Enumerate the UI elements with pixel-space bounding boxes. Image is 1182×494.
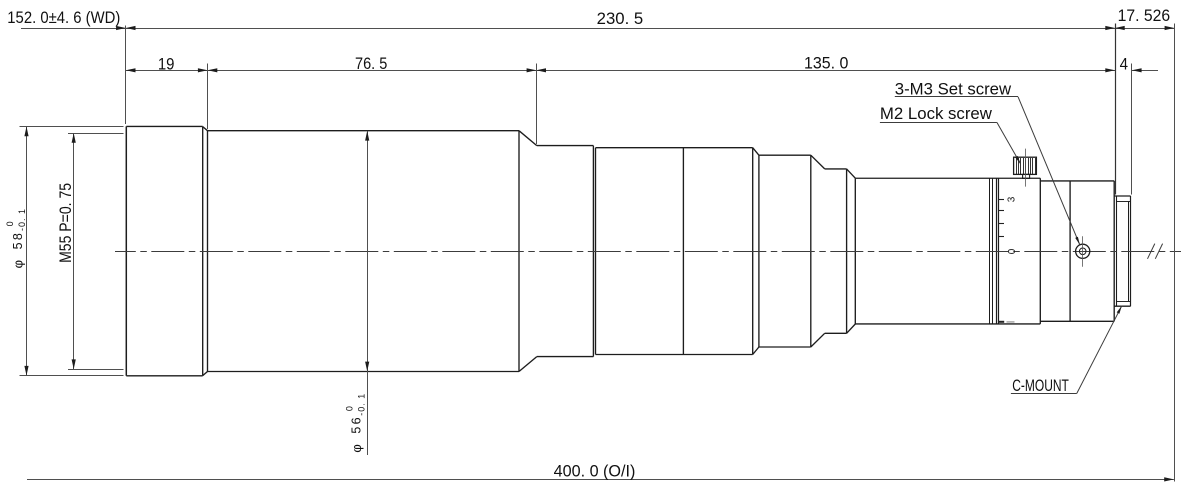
svg-text:M2 Lock screw: M2 Lock screw <box>880 105 992 123</box>
svg-text:230. 5: 230. 5 <box>597 10 644 28</box>
svg-text:58: 58 <box>11 231 25 250</box>
svg-text:M55 P=0. 75: M55 P=0. 75 <box>57 183 75 263</box>
svg-text:135. 0: 135. 0 <box>804 54 848 72</box>
svg-text:-0. 1: -0. 1 <box>17 208 27 231</box>
svg-text:76. 5: 76. 5 <box>355 55 387 73</box>
svg-text:19: 19 <box>158 55 175 73</box>
svg-text:152. 0±4. 6 (WD): 152. 0±4. 6 (WD) <box>7 9 120 27</box>
svg-text:0: 0 <box>5 221 15 226</box>
svg-text:4: 4 <box>1120 55 1128 73</box>
svg-text:56: 56 <box>349 415 363 434</box>
svg-text:0: 0 <box>1007 248 1018 254</box>
svg-text:17. 526: 17. 526 <box>1118 7 1171 25</box>
svg-text:φ: φ <box>11 260 26 268</box>
svg-text:φ: φ <box>349 444 364 452</box>
svg-text:3-M3 Set screw: 3-M3 Set screw <box>895 80 1012 98</box>
svg-text:3: 3 <box>1006 196 1017 202</box>
svg-text:400. 0 (O/I): 400. 0 (O/I) <box>554 462 636 480</box>
svg-text:0: 0 <box>344 406 354 411</box>
svg-text:C-MOUNT: C-MOUNT <box>1012 377 1069 395</box>
svg-text:-0. 1: -0. 1 <box>356 393 366 416</box>
